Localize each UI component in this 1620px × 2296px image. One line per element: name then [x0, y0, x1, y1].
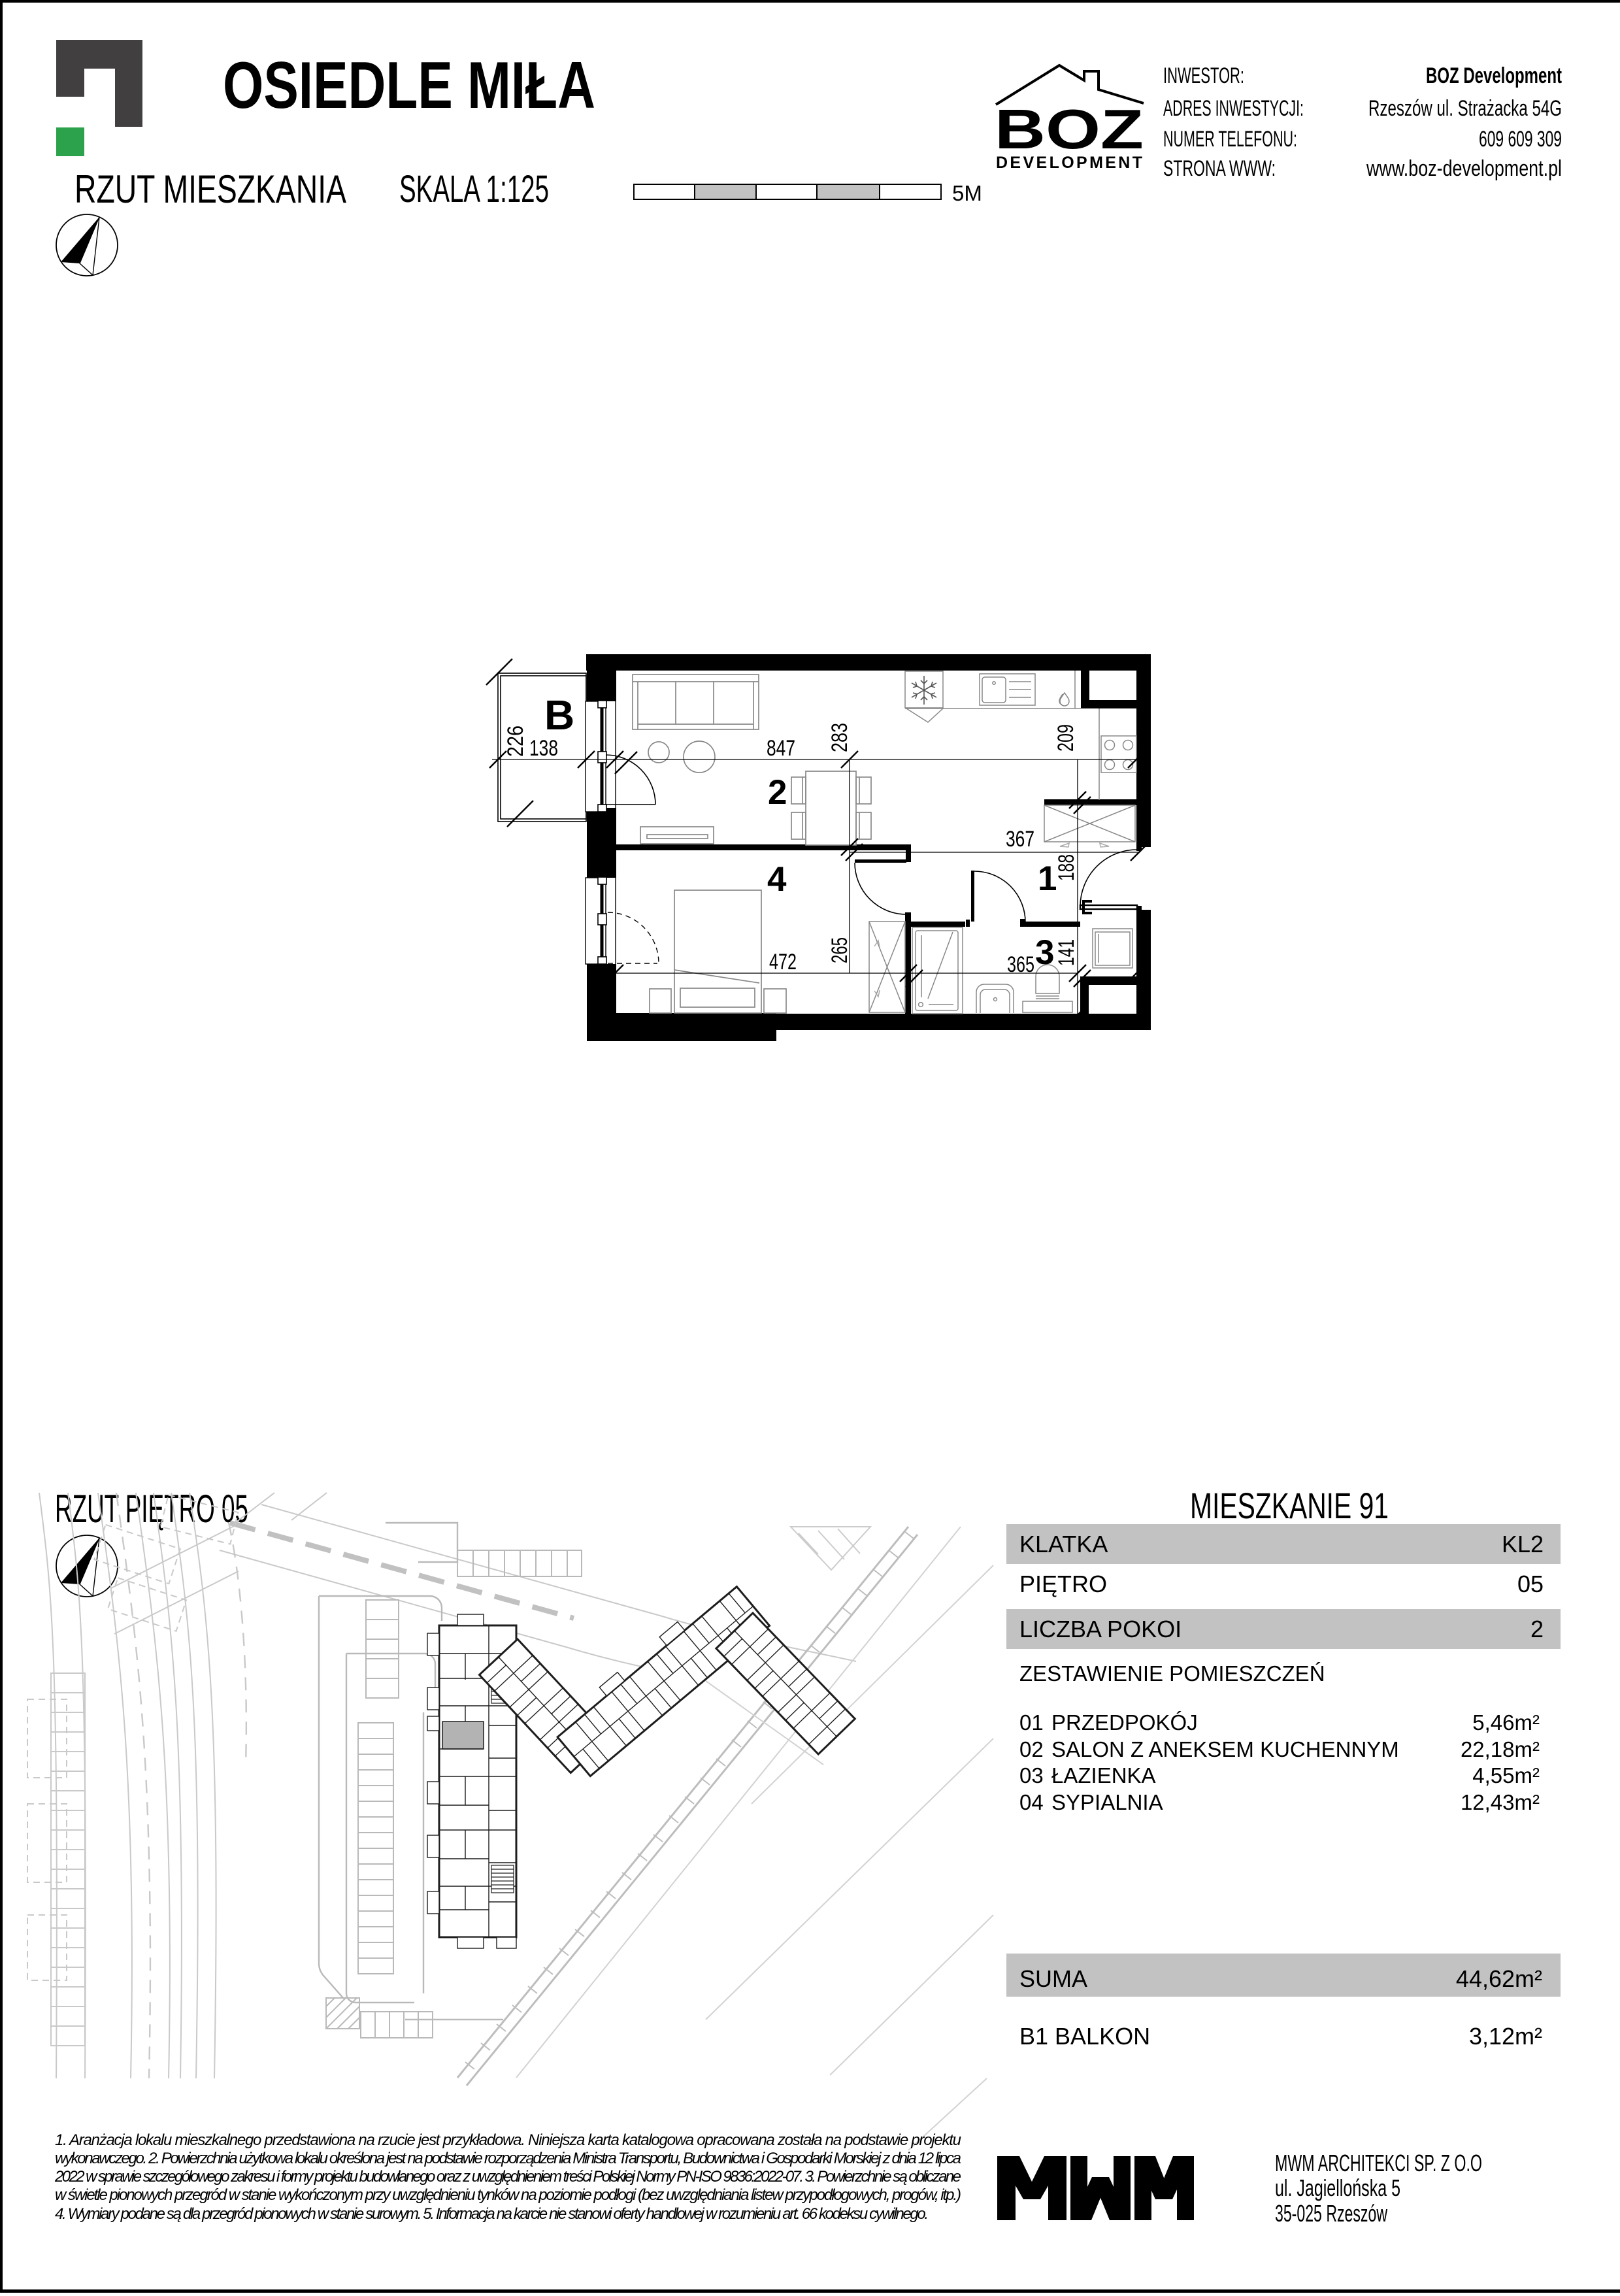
svg-text:ZESTAWIENIE POMIESZCZEŃ: ZESTAWIENIE POMIESZCZEŃ [1019, 1661, 1325, 1686]
svg-text:SALON Z ANEKSEM KUCHENNYM: SALON Z ANEKSEM KUCHENNYM [1051, 1737, 1399, 1761]
svg-text:03: 03 [1019, 1763, 1044, 1788]
svg-text:NUMER TELEFONU:: NUMER TELEFONU: [1163, 127, 1297, 152]
svg-text:35-025 Rzeszów: 35-025 Rzeszów [1275, 2200, 1388, 2227]
svg-text:05: 05 [1517, 1571, 1544, 1597]
svg-text:1. Aranżacja lokalu mieszka: 1. Aranżacja lokalu mieszkalnego przedst… [55, 2131, 961, 2149]
svg-text:209: 209 [1053, 724, 1078, 752]
svg-text:B: B [544, 691, 574, 739]
svg-text:1: 1 [1038, 859, 1057, 898]
svg-text:ŁAZIENKA: ŁAZIENKA [1051, 1763, 1156, 1788]
svg-text:609 609 309: 609 609 309 [1479, 127, 1562, 152]
svg-text:5,46m²: 5,46m² [1472, 1710, 1540, 1735]
svg-text:44,62m²: 44,62m² [1456, 1965, 1542, 1992]
svg-text:5M: 5M [952, 181, 982, 205]
svg-text:365: 365 [1007, 952, 1034, 977]
svg-text:PRZEDPOKÓJ: PRZEDPOKÓJ [1051, 1710, 1198, 1735]
svg-text:ul. Jagiellońska 5: ul. Jagiellońska 5 [1275, 2174, 1400, 2201]
svg-text:141: 141 [1054, 939, 1079, 966]
svg-text:www.boz-development.pl: www.boz-development.pl [1366, 156, 1562, 181]
svg-text:4,55m²: 4,55m² [1472, 1763, 1540, 1788]
svg-text:SYPIALNIA: SYPIALNIA [1051, 1790, 1163, 1814]
svg-text:RZUT PIĘTRO 05: RZUT PIĘTRO 05 [55, 1487, 248, 1531]
svg-text:4. Wymiary podane są dla prze: 4. Wymiary podane są dla przegród pionow… [55, 2205, 929, 2223]
svg-text:B1 BALKON: B1 BALKON [1019, 2023, 1150, 2050]
svg-text:SUMA: SUMA [1019, 1965, 1087, 1992]
svg-text:138: 138 [529, 736, 558, 761]
svg-text:LICZBA POKOI: LICZBA POKOI [1019, 1616, 1182, 1642]
svg-text:188: 188 [1054, 854, 1079, 881]
svg-text:4: 4 [767, 860, 787, 899]
svg-text:472: 472 [769, 950, 797, 974]
svg-text:22,18m²: 22,18m² [1461, 1737, 1540, 1761]
svg-text:ADRES INWESTYCJI:: ADRES INWESTYCJI: [1163, 96, 1304, 121]
svg-text:367: 367 [1006, 827, 1034, 852]
svg-text:INWESTOR:: INWESTOR: [1163, 63, 1244, 88]
svg-text:3,12m²: 3,12m² [1469, 2023, 1542, 2050]
svg-text:DEVELOPMENT: DEVELOPMENT [996, 154, 1142, 172]
svg-text:847: 847 [767, 736, 795, 761]
svg-text:OSIEDLE MIŁA: OSIEDLE MIŁA [223, 49, 595, 122]
svg-text:BOZ: BOZ [995, 99, 1144, 161]
svg-text:SKALA 1:125: SKALA 1:125 [399, 168, 549, 210]
svg-text:KL2: KL2 [1502, 1531, 1544, 1557]
svg-text:02: 02 [1019, 1737, 1044, 1761]
svg-text:STRONA WWW:: STRONA WWW: [1163, 156, 1276, 181]
svg-text:3: 3 [1035, 933, 1054, 972]
svg-text:MIESZKANIE 91: MIESZKANIE 91 [1190, 1485, 1389, 1526]
svg-text:RZUT MIESZKANIA: RZUT MIESZKANIA [74, 167, 346, 211]
svg-text:Rzeszów ul. Strażacka 54G: Rzeszów ul. Strażacka 54G [1368, 96, 1562, 121]
svg-text:2: 2 [1530, 1616, 1544, 1642]
svg-text:12,43m²: 12,43m² [1461, 1790, 1540, 1814]
svg-text:KLATKA: KLATKA [1019, 1531, 1108, 1557]
svg-text:01: 01 [1019, 1710, 1044, 1735]
svg-text:w świetle pionowych przegró: w świetle pionowych przegród w stanie wy… [55, 2186, 961, 2204]
svg-text:2: 2 [768, 773, 787, 812]
svg-text:MWM ARCHITEKCI SP. Z O.O: MWM ARCHITEKCI SP. Z O.O [1275, 2150, 1482, 2176]
svg-text:265: 265 [827, 937, 852, 963]
svg-text:226: 226 [503, 725, 528, 757]
svg-text:2022 w sprawie szczegółoweg: 2022 w sprawie szczegółowego zakresu i f… [54, 2168, 961, 2186]
svg-text:wykonawczego. 2. Powierzchnia: wykonawczego. 2. Powierzchnia użytkowa l… [55, 2150, 961, 2167]
svg-text:283: 283 [827, 723, 852, 752]
svg-text:BOZ Development: BOZ Development [1426, 63, 1562, 88]
svg-text:PIĘTRO: PIĘTRO [1019, 1571, 1107, 1597]
svg-text:04: 04 [1019, 1790, 1044, 1814]
